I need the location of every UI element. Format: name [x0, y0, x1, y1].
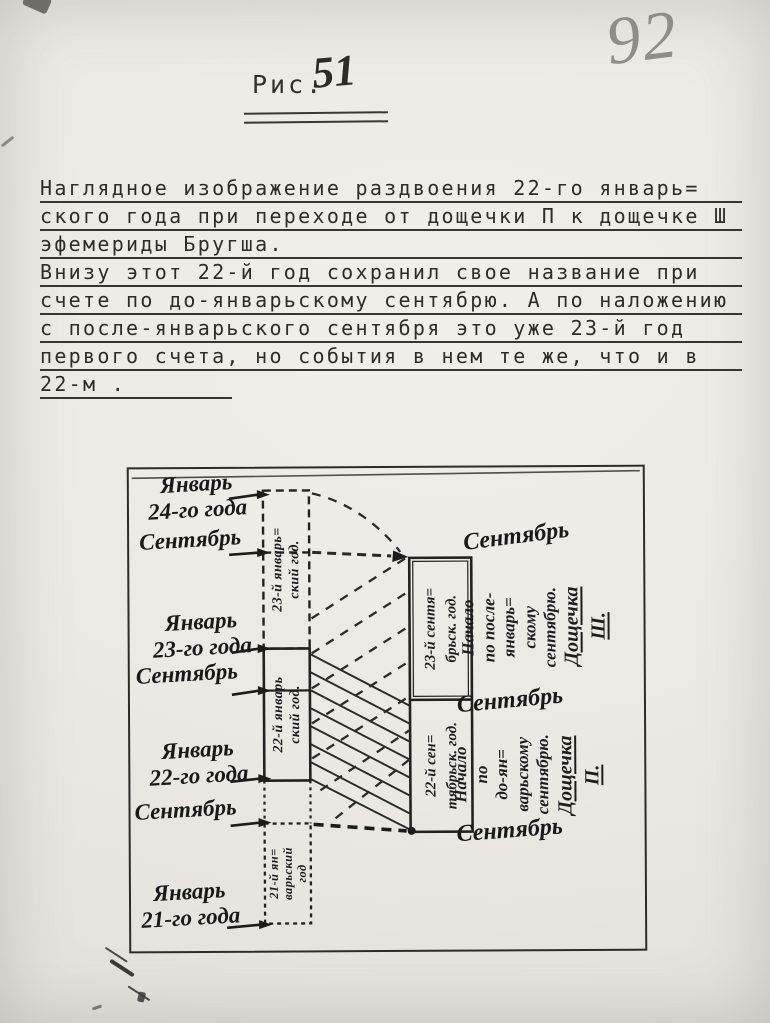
solid-mapping-lines — [311, 654, 411, 831]
pencil-smudge — [1, 136, 14, 147]
paragraph-line: с после-январьского сентября это уже 23-… — [40, 316, 742, 343]
caption-paragraph: Наглядное изображение раздвоения 22-го я… — [40, 176, 742, 400]
paragraph-line: 22-м . — [40, 372, 232, 399]
paragraph-line: счете по до-январьскому сентябрю. А по н… — [40, 288, 742, 315]
ink-smudge — [109, 959, 135, 978]
note-after-january-september: Начало по после- январь= скому сентябрю. — [457, 553, 562, 702]
scanned-page: 92 Рис. 51 Наглядное изображение раздвое… — [0, 0, 770, 1023]
paragraph-line: ского года при переходе от дощечки П к д… — [40, 204, 742, 231]
label-january-21: Январь 21-го года — [130, 876, 251, 935]
paragraph-line: Внизу этот 22-й год сохранил свое назван… — [40, 260, 742, 287]
paragraph-line: Наглядное изображение раздвоения 22-го я… — [40, 176, 742, 203]
figure-number: 51 — [310, 44, 358, 99]
label-january-22: Январь 22-го года — [139, 734, 258, 793]
diagram-frame: Январь 24-го года Сентябрь Январь 23-го … — [127, 465, 648, 954]
paragraph-line: первого счета, но события в нем те же, ч… — [40, 344, 742, 371]
ink-smudge — [137, 991, 146, 1002]
figure-title-underline — [244, 111, 388, 124]
paragraph-line: эфемериды Бругша. — [40, 232, 742, 259]
page-number: 92 — [602, 0, 751, 81]
left-strip-year-21: 21-й ян= варьский год — [265, 826, 311, 920]
fan-arrowhead — [392, 550, 408, 562]
scan-corner-mark — [22, 0, 52, 15]
left-strip-year-23: 23-й январь= ский год. — [263, 494, 310, 644]
label-january-23: Январь 23-го года — [142, 606, 261, 665]
label-january-24: Январь 24-го года — [137, 468, 256, 527]
ink-smudge — [92, 1004, 102, 1010]
left-strip-year-22: 22-й январь ский год. — [264, 652, 311, 776]
